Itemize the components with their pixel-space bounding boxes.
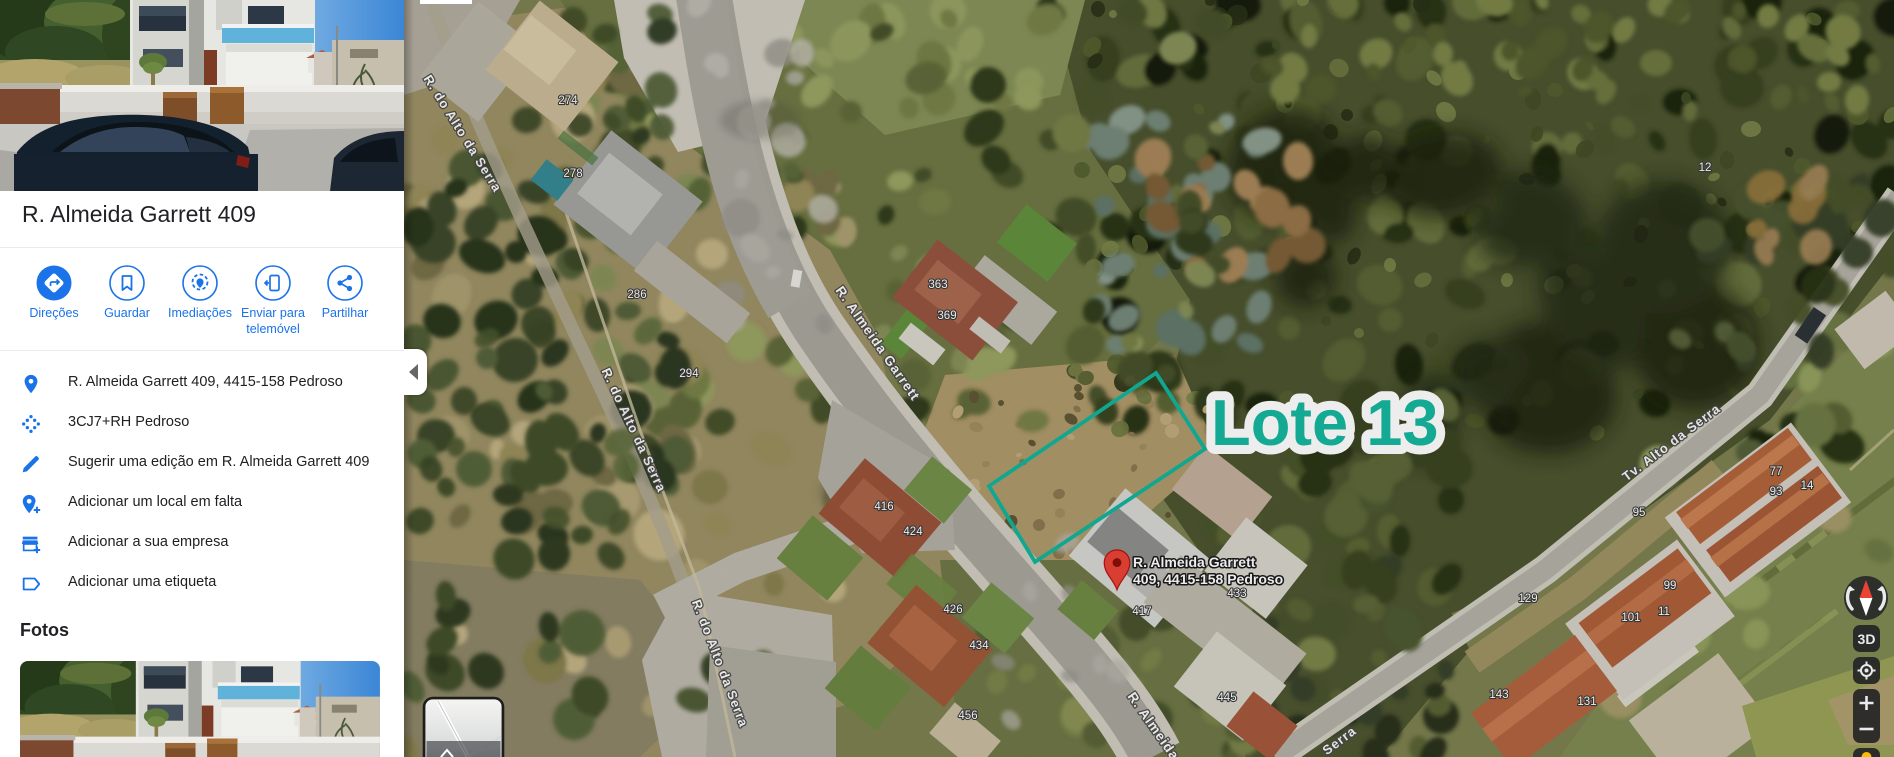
svg-text:3D: 3D xyxy=(1858,631,1876,647)
